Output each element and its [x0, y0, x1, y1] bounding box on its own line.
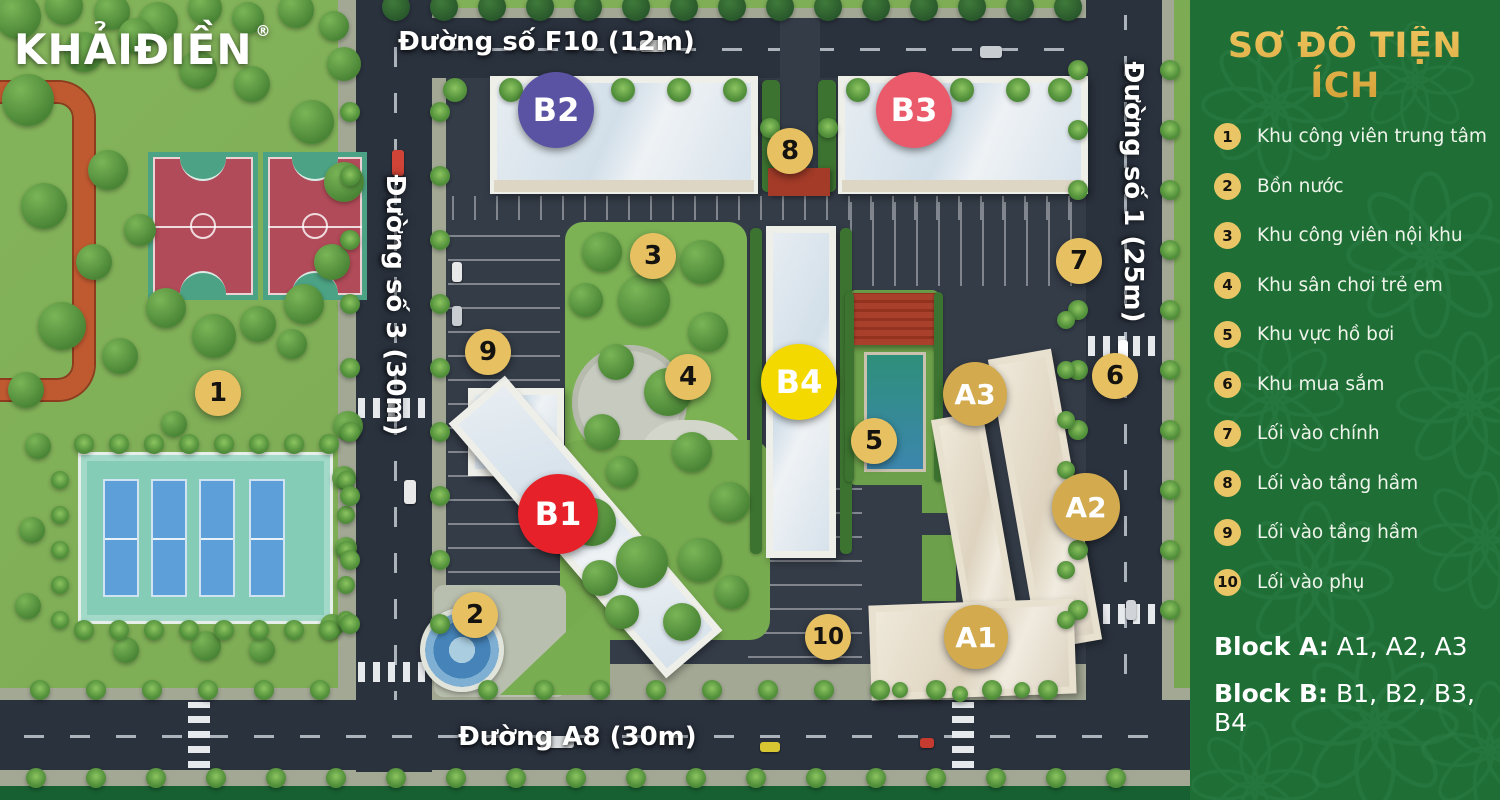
car — [392, 150, 404, 176]
palm-tree — [1068, 540, 1088, 560]
palm-tree — [340, 358, 360, 378]
palm-tree — [723, 78, 747, 102]
marker-building-b1: B1 — [518, 474, 598, 554]
palm-tree — [1106, 768, 1126, 788]
marker-building-b4: B4 — [761, 344, 837, 420]
legend-item: 3Khu công viên nội khu — [1214, 211, 1487, 261]
palm-tree — [818, 118, 838, 138]
legend-label: Khu công viên nội khu — [1257, 225, 1463, 246]
legend-label: Lối vào tầng hầm — [1257, 473, 1418, 494]
entrance-canopy — [768, 168, 830, 196]
palm-tree — [337, 506, 355, 524]
crosswalk — [188, 702, 210, 768]
palm-tree — [284, 434, 304, 454]
tree — [278, 0, 314, 28]
legend-list: 1Khu công viên trung tâm 2Bồn nước 3Khu … — [1214, 112, 1487, 607]
tree — [249, 637, 275, 663]
block-a-line: Block A:A1, A2, A3 — [1214, 632, 1468, 661]
tree — [15, 593, 41, 619]
registered-mark: ® — [256, 22, 272, 40]
legend-item: 1Khu công viên trung tâm — [1214, 112, 1487, 162]
marker-building-a3: A3 — [943, 362, 1007, 426]
palm-tree — [1160, 420, 1180, 440]
tree — [678, 538, 722, 582]
legend-bullet: 5 — [1214, 321, 1241, 348]
palm-tree — [1048, 78, 1072, 102]
legend-label: Lối vào chính — [1257, 423, 1380, 444]
legend-item: 5Khu vực hồ bơi — [1214, 310, 1487, 360]
running-track — [0, 82, 94, 400]
palm-tree — [1160, 480, 1180, 500]
palm-tree — [51, 506, 69, 524]
road-label-a8: Đường A8 (30m) — [458, 722, 697, 752]
car — [452, 262, 462, 282]
legend-label: Bồn nước — [1257, 176, 1344, 197]
palm-tree — [144, 434, 164, 454]
legend-label: Khu vực hồ bơi — [1257, 324, 1394, 345]
a-court-green — [922, 535, 956, 601]
palm-tree — [319, 434, 339, 454]
palm-tree — [892, 682, 908, 698]
road-label-f10: Đường số F10 (12m) — [398, 27, 695, 57]
legend-label: Khu sân chơi trẻ em — [1257, 275, 1443, 296]
palm-tree — [74, 434, 94, 454]
masterplan-map: Đường số F10 (12m) Đường số 3 (30m) Đườn… — [0, 0, 1190, 800]
car — [980, 46, 1002, 58]
marker-4: 4 — [665, 354, 711, 400]
block-a-name: Block A: — [1214, 632, 1329, 661]
palm-tree — [667, 78, 691, 102]
marker-8: 8 — [767, 128, 813, 174]
palm-tree — [109, 434, 129, 454]
palm-tree — [266, 768, 286, 788]
legend-bullet: 4 — [1214, 272, 1241, 299]
palm-tree — [337, 576, 355, 594]
palm-tree — [430, 358, 450, 378]
palm-tree — [430, 294, 450, 314]
marker-2: 2 — [452, 592, 498, 638]
palm-tree — [430, 166, 450, 186]
legend-bullet: 6 — [1214, 371, 1241, 398]
marker-1: 1 — [195, 370, 241, 416]
hedge-row — [750, 228, 762, 554]
palm-tree — [254, 680, 274, 700]
parking-row — [850, 202, 1080, 286]
road-label-so3: Đường số 3 (30m) — [380, 175, 410, 436]
palm-tree — [626, 768, 646, 788]
car — [760, 742, 780, 752]
car — [920, 738, 934, 748]
tree — [327, 47, 361, 81]
tree — [598, 344, 634, 380]
tree — [715, 575, 749, 609]
pool-clubhouse — [850, 293, 936, 345]
legend-label: Lối vào phụ — [1257, 572, 1364, 593]
tree — [277, 329, 307, 359]
palm-tree — [1057, 611, 1075, 629]
tree — [606, 456, 638, 488]
marker-building-a2: A2 — [1052, 473, 1120, 541]
palm-tree — [430, 550, 450, 570]
palm-tree — [340, 102, 360, 122]
palm-tree — [746, 768, 766, 788]
marker-building-b3: B3 — [876, 72, 952, 148]
palm-tree — [109, 620, 129, 640]
tree — [584, 414, 620, 450]
tree — [113, 637, 139, 663]
palm-tree — [646, 680, 666, 700]
palm-tree — [1057, 411, 1075, 429]
palm-tree — [1038, 680, 1058, 700]
palm-tree — [206, 768, 226, 788]
palm-tree — [249, 434, 269, 454]
legend-bullet: 3 — [1214, 222, 1241, 249]
tree — [8, 372, 44, 408]
palm-tree — [86, 680, 106, 700]
palm-tree — [506, 768, 526, 788]
tree — [680, 240, 724, 284]
tree — [582, 560, 618, 596]
legend-bullet: 9 — [1214, 519, 1241, 546]
palm-tree — [926, 680, 946, 700]
block-a-value: A1, A2, A3 — [1337, 632, 1468, 661]
palm-tree — [51, 611, 69, 629]
palm-tree — [326, 768, 346, 788]
palm-tree — [1068, 60, 1088, 80]
developer-logo: KHẢIĐIỀN® — [14, 22, 272, 74]
tree — [314, 244, 350, 280]
tree — [192, 314, 236, 358]
legend-bullet: 10 — [1214, 569, 1241, 596]
palm-tree — [702, 680, 722, 700]
palm-tree — [249, 620, 269, 640]
legend-item: 10Lối vào phụ — [1214, 558, 1487, 608]
palm-tree — [430, 102, 450, 122]
palm-tree — [478, 680, 498, 700]
palm-tree — [179, 620, 199, 640]
palm-tree — [142, 680, 162, 700]
legend-label: Lối vào tầng hầm — [1257, 522, 1418, 543]
crosswalk — [952, 702, 974, 768]
palm-tree — [284, 620, 304, 640]
palm-tree — [214, 434, 234, 454]
palm-tree — [590, 680, 610, 700]
legend-item: 8Lối vào tầng hầm — [1214, 459, 1487, 509]
tree — [146, 288, 186, 328]
block-b-name: Block B: — [1214, 679, 1328, 708]
palm-tree — [686, 768, 706, 788]
palm-tree — [1160, 360, 1180, 380]
palm-tree — [146, 768, 166, 788]
tree — [124, 214, 156, 246]
palm-tree — [1160, 180, 1180, 200]
palm-tree — [846, 78, 870, 102]
car — [404, 480, 416, 504]
palm-tree — [758, 680, 778, 700]
palm-tree — [870, 680, 890, 700]
tree — [21, 183, 67, 229]
palm-tree — [1014, 682, 1030, 698]
tree — [284, 284, 324, 324]
legend-item: 2Bồn nước — [1214, 162, 1487, 212]
palm-tree — [1046, 768, 1066, 788]
palm-tree — [26, 768, 46, 788]
palm-tree — [430, 486, 450, 506]
palm-tree — [1160, 540, 1180, 560]
palm-tree — [386, 768, 406, 788]
tree — [19, 517, 45, 543]
palm-tree — [1160, 240, 1180, 260]
palm-tree — [198, 680, 218, 700]
palm-tree — [952, 686, 968, 702]
sidewalk — [1162, 0, 1174, 700]
palm-tree — [86, 768, 106, 788]
legend-sidebar: SƠ ĐỒ TIỆN ÍCH 1Khu công viên trung tâm … — [1190, 0, 1500, 800]
palm-tree — [430, 230, 450, 250]
marker-10: 10 — [805, 614, 851, 660]
palm-tree — [446, 768, 466, 788]
palm-tree — [430, 614, 450, 634]
legend-item: 4Khu sân chơi trẻ em — [1214, 261, 1487, 311]
logo-text: KHẢIĐIỀN — [14, 25, 253, 74]
legend-bullet: 1 — [1214, 123, 1241, 150]
tree — [161, 411, 187, 437]
marker-5: 5 — [851, 418, 897, 464]
palm-tree — [340, 230, 360, 250]
legend-bullet: 8 — [1214, 470, 1241, 497]
tree — [76, 244, 112, 280]
palm-tree — [1068, 120, 1088, 140]
tree — [618, 274, 670, 326]
legend-item: 7Lối vào chính — [1214, 409, 1487, 459]
palm-tree — [214, 620, 234, 640]
tree — [102, 338, 138, 374]
marker-building-a1: A1 — [944, 605, 1008, 669]
tree — [240, 306, 276, 342]
palm-tree — [30, 680, 50, 700]
legend-label: Khu mua sắm — [1257, 374, 1384, 395]
palm-tree — [340, 166, 360, 186]
palm-tree — [814, 680, 834, 700]
tree — [319, 11, 349, 41]
palm-tree — [340, 422, 360, 442]
tree — [569, 283, 603, 317]
palm-tree — [1160, 60, 1180, 80]
tree — [582, 232, 622, 272]
tree — [2, 74, 54, 126]
tree — [290, 100, 334, 144]
marker-3: 3 — [630, 233, 676, 279]
palm-tree — [74, 620, 94, 640]
site-plan-poster: Đường số F10 (12m) Đường số 3 (30m) Đườn… — [0, 0, 1500, 800]
car — [452, 306, 462, 326]
palm-tree — [179, 434, 199, 454]
legend-bullet: 7 — [1214, 420, 1241, 447]
palm-tree — [1068, 180, 1088, 200]
marker-7: 7 — [1056, 238, 1102, 284]
legend-label: Khu công viên trung tâm — [1257, 126, 1487, 147]
palm-tree — [319, 620, 339, 640]
tree — [688, 312, 728, 352]
palm-tree — [1057, 561, 1075, 579]
car — [1126, 600, 1136, 620]
tree — [605, 595, 639, 629]
legend-bullet: 2 — [1214, 173, 1241, 200]
tree — [25, 433, 51, 459]
marker-6: 6 — [1092, 353, 1138, 399]
palm-tree — [51, 471, 69, 489]
palm-tree — [340, 550, 360, 570]
palm-tree — [982, 680, 1002, 700]
block-b-line: Block B:B1, B2, B3, B4 — [1214, 679, 1500, 737]
tree — [88, 150, 128, 190]
border-green-strip — [0, 786, 1190, 800]
palm-tree — [1057, 361, 1075, 379]
palm-tree — [310, 680, 330, 700]
palm-tree — [340, 486, 360, 506]
palm-tree — [1006, 78, 1030, 102]
palm-tree — [1160, 600, 1180, 620]
palm-tree — [566, 768, 586, 788]
palm-tree — [430, 422, 450, 442]
hedge-row — [845, 292, 854, 482]
palm-tree — [144, 620, 164, 640]
marker-building-b2: B2 — [518, 72, 594, 148]
palm-tree — [866, 768, 886, 788]
palm-tree — [926, 768, 946, 788]
palm-tree — [51, 576, 69, 594]
legend-item: 9Lối vào tầng hầm — [1214, 508, 1487, 558]
palm-tree — [950, 78, 974, 102]
palm-tree — [51, 541, 69, 559]
palm-tree — [534, 680, 554, 700]
tree — [38, 302, 86, 350]
basketball-court — [148, 152, 258, 300]
crosswalk — [358, 662, 430, 682]
palm-tree — [986, 768, 1006, 788]
palm-tree — [611, 78, 635, 102]
palm-tree — [1160, 120, 1180, 140]
palm-tree — [443, 78, 467, 102]
road-label-so1: Đường số 1 (25m) — [1118, 62, 1148, 323]
legend-item: 6Khu mua sắm — [1214, 360, 1487, 410]
legend-title: SƠ ĐỒ TIỆN ÍCH — [1190, 26, 1500, 106]
palm-tree — [1057, 311, 1075, 329]
palm-tree — [1160, 300, 1180, 320]
tree — [616, 536, 668, 588]
palm-tree — [340, 294, 360, 314]
palm-tree — [340, 614, 360, 634]
tennis-courts — [78, 452, 333, 624]
palm-tree — [806, 768, 826, 788]
marker-9: 9 — [465, 329, 511, 375]
tree — [663, 603, 701, 641]
tree — [710, 482, 750, 522]
tree — [672, 432, 712, 472]
